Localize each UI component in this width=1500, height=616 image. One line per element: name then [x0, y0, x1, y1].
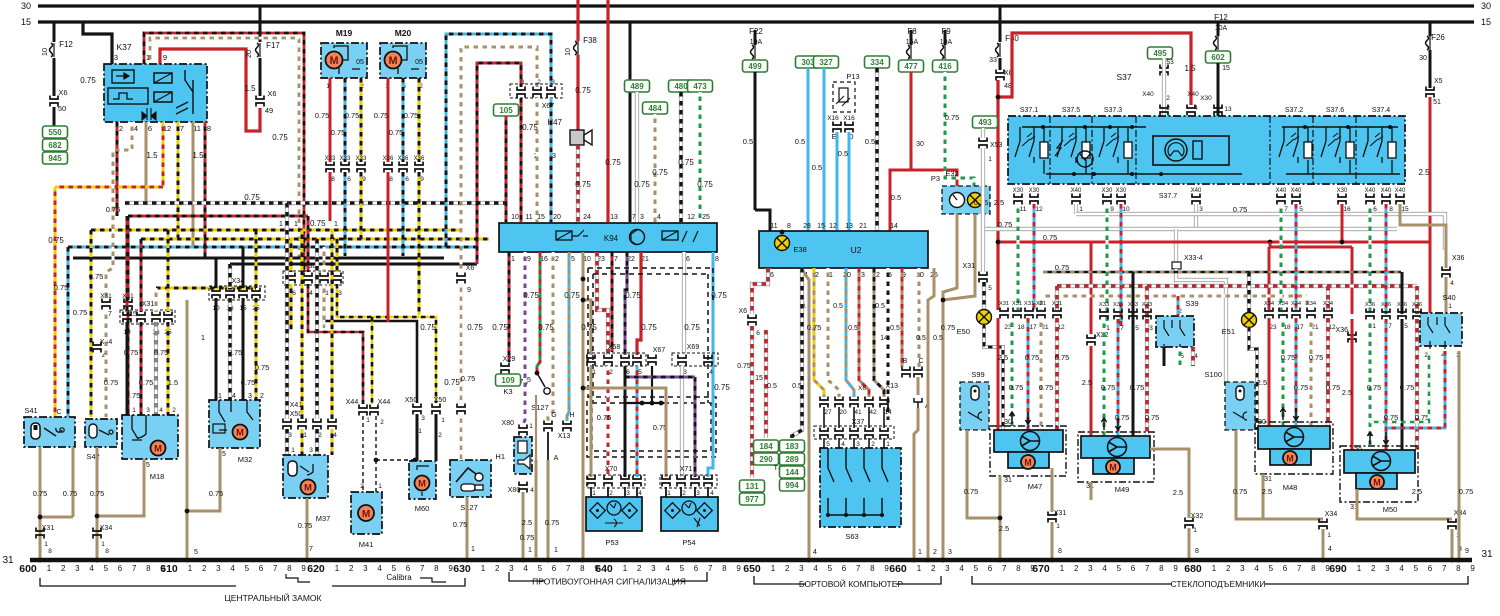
svg-text:2: 2	[61, 564, 66, 573]
svg-text:2: 2	[202, 564, 207, 573]
svg-text:0.75: 0.75	[1281, 353, 1296, 362]
svg-text:3: 3	[114, 53, 118, 62]
svg-text:8: 8	[331, 176, 335, 183]
svg-text:X31: X31	[1024, 301, 1034, 307]
svg-text:30: 30	[21, 1, 31, 11]
svg-text:M19: M19	[336, 28, 353, 38]
svg-text:P54: P54	[682, 538, 695, 547]
svg-text:8: 8	[434, 564, 439, 573]
svg-text:550: 550	[48, 128, 62, 137]
svg-text:05: 05	[415, 59, 423, 66]
svg-text:2.5: 2.5	[994, 198, 1004, 207]
svg-text:1: 1	[1327, 532, 1331, 539]
svg-text:X34: X34	[1291, 301, 1302, 307]
svg-text:K94: K94	[604, 234, 619, 243]
svg-text:F17: F17	[266, 41, 280, 50]
svg-text:0.75: 0.75	[625, 291, 641, 300]
svg-text:X5: X5	[1434, 78, 1443, 85]
svg-text:12: 12	[1035, 206, 1043, 213]
svg-text:1.5: 1.5	[244, 84, 256, 93]
svg-text:20: 20	[839, 409, 847, 416]
svg-text:9: 9	[736, 564, 741, 573]
svg-text:C: C	[918, 358, 923, 365]
svg-text:1: 1	[592, 490, 596, 497]
svg-text:X40: X40	[1365, 188, 1376, 194]
svg-text:X36: X36	[383, 156, 394, 162]
svg-text:2.5: 2.5	[1342, 388, 1352, 397]
svg-text:2: 2	[933, 549, 937, 556]
svg-text:0.75: 0.75	[597, 413, 612, 422]
svg-text:31: 31	[1481, 549, 1493, 560]
svg-text:3: 3	[552, 153, 556, 160]
svg-text:0.75: 0.75	[634, 180, 650, 189]
svg-text:5: 5	[826, 441, 830, 448]
svg-text:0.75: 0.75	[298, 521, 313, 530]
svg-text:2: 2	[495, 564, 500, 573]
svg-text:3: 3	[551, 79, 555, 86]
svg-text:0.75: 0.75	[697, 180, 713, 189]
svg-text:X44: X44	[378, 399, 391, 406]
svg-text:3: 3	[945, 564, 950, 573]
svg-text:0.75: 0.75	[1294, 383, 1309, 392]
svg-text:15: 15	[755, 375, 763, 382]
svg-text:S37.7: S37.7	[1159, 193, 1177, 200]
svg-text:5: 5	[146, 462, 150, 469]
svg-text:M37: M37	[316, 514, 331, 523]
svg-text:2.5: 2.5	[998, 353, 1008, 362]
svg-text:X31: X31	[1036, 301, 1046, 307]
svg-text:23: 23	[1269, 324, 1277, 331]
svg-text:4: 4	[1328, 546, 1332, 553]
svg-text:6: 6	[694, 564, 699, 573]
svg-text:0.75: 0.75	[605, 158, 621, 167]
svg-text:X40: X40	[1291, 188, 1302, 194]
svg-text:0.5: 0.5	[865, 137, 875, 146]
svg-text:6: 6	[292, 290, 296, 297]
svg-text:S127: S127	[531, 403, 549, 412]
svg-text:2: 2	[1074, 564, 1079, 573]
svg-text:0.5: 0.5	[890, 325, 900, 332]
svg-text:X44: X44	[346, 399, 359, 406]
svg-text:4: 4	[230, 564, 235, 573]
svg-text:X30: X30	[1116, 188, 1127, 194]
svg-text:7: 7	[132, 564, 137, 573]
svg-text:G: G	[551, 412, 556, 419]
svg-text:620: 620	[307, 563, 325, 575]
svg-text:X13: X13	[558, 433, 571, 440]
svg-text:0.75: 0.75	[33, 489, 48, 498]
svg-text:0.75: 0.75	[575, 86, 591, 95]
svg-text:X40: X40	[1381, 188, 1392, 194]
svg-text:0.75: 0.75	[453, 520, 468, 529]
svg-text:0.75: 0.75	[1039, 383, 1054, 392]
svg-text:S40: S40	[1442, 293, 1455, 302]
svg-text:0.75: 0.75	[1384, 413, 1399, 422]
svg-text:602: 602	[1211, 53, 1225, 62]
svg-text:X70: X70	[605, 466, 618, 473]
svg-text:15: 15	[537, 214, 545, 221]
svg-text:0.75: 0.75	[467, 323, 483, 332]
svg-text:493: 493	[978, 118, 992, 127]
svg-text:6: 6	[842, 564, 847, 573]
svg-text:1: 1	[481, 564, 486, 573]
svg-text:8: 8	[715, 256, 719, 263]
svg-text:0.75: 0.75	[315, 111, 330, 120]
svg-text:0.75: 0.75	[444, 378, 460, 387]
svg-text:1: 1	[325, 290, 329, 297]
svg-text:X29: X29	[503, 356, 516, 363]
svg-text:05: 05	[356, 59, 364, 66]
svg-text:49: 49	[265, 106, 273, 115]
svg-text:6: 6	[406, 564, 411, 573]
svg-text:5: 5	[527, 377, 531, 384]
svg-text:28: 28	[803, 223, 811, 230]
svg-text:0.75: 0.75	[1367, 383, 1382, 392]
svg-text:14: 14	[890, 223, 898, 230]
svg-text:0.75: 0.75	[89, 272, 104, 281]
svg-text:E50: E50	[957, 327, 970, 336]
svg-text:13: 13	[610, 214, 618, 221]
svg-text:2: 2	[682, 490, 686, 497]
svg-text:X36: X36	[1412, 302, 1422, 308]
svg-text:0.75: 0.75	[54, 283, 69, 292]
svg-text:3: 3	[216, 564, 221, 573]
svg-text:12: 12	[687, 214, 695, 221]
svg-text:9: 9	[1173, 564, 1178, 573]
svg-text:650: 650	[743, 563, 761, 575]
svg-text:7: 7	[180, 124, 184, 133]
svg-text:M: M	[362, 509, 370, 520]
svg-text:7: 7	[309, 546, 313, 553]
svg-text:7: 7	[108, 311, 112, 318]
svg-text:X53: X53	[990, 142, 1003, 149]
svg-text:0.75: 0.75	[538, 323, 554, 332]
svg-text:1: 1	[291, 447, 295, 454]
svg-text:495: 495	[1153, 49, 1167, 58]
svg-text:18: 18	[1283, 324, 1291, 331]
svg-text:3: 3	[626, 490, 630, 497]
svg-text:X30: X30	[304, 263, 317, 270]
svg-text:0.75: 0.75	[714, 383, 730, 392]
svg-text:20: 20	[553, 214, 561, 221]
svg-text:S37.3: S37.3	[1104, 107, 1122, 114]
svg-text:0.75: 0.75	[1043, 233, 1058, 242]
svg-text:X33: X33	[1128, 302, 1138, 308]
svg-text:5: 5	[974, 564, 979, 573]
svg-text:X36: X36	[1336, 327, 1349, 334]
svg-text:M: M	[154, 444, 162, 454]
svg-text:P3: P3	[931, 174, 940, 183]
svg-text:1: 1	[334, 221, 338, 228]
svg-text:5: 5	[194, 549, 198, 556]
svg-text:0.5: 0.5	[833, 303, 843, 310]
svg-text:7: 7	[1388, 323, 1392, 330]
svg-text:X34: X34	[1278, 301, 1289, 307]
svg-text:S41: S41	[24, 406, 37, 415]
svg-text:S37.6: S37.6	[1326, 107, 1344, 114]
svg-text:0.75: 0.75	[1115, 413, 1130, 422]
svg-text:0.75: 0.75	[241, 378, 256, 387]
svg-text:0.5: 0.5	[933, 335, 943, 342]
svg-text:8: 8	[1058, 548, 1062, 555]
svg-text:0.75: 0.75	[1055, 353, 1070, 362]
svg-text:0.75: 0.75	[1400, 383, 1415, 392]
svg-text:477: 477	[904, 62, 918, 71]
svg-text:0.75: 0.75	[90, 489, 105, 498]
svg-text:4: 4	[1194, 105, 1198, 112]
svg-text:X34: X34	[1306, 301, 1317, 307]
svg-text:4: 4	[309, 290, 313, 297]
svg-text:33: 33	[989, 57, 997, 64]
svg-text:X36: X36	[1452, 255, 1465, 262]
svg-text:15: 15	[817, 223, 825, 230]
svg-text:M60: M60	[415, 504, 430, 513]
svg-text:4: 4	[1254, 564, 1259, 573]
svg-text:1: 1	[667, 490, 671, 497]
svg-text:9: 9	[1470, 564, 1475, 573]
svg-text:1.5: 1.5	[168, 378, 178, 387]
svg-text:11: 11	[1020, 206, 1027, 213]
svg-text:183: 183	[785, 442, 799, 451]
svg-text:X34: X34	[1325, 511, 1338, 518]
svg-text:X34: X34	[1323, 301, 1334, 307]
svg-text:10: 10	[565, 48, 572, 56]
svg-text:15: 15	[1481, 17, 1491, 27]
svg-text:6: 6	[552, 564, 557, 573]
svg-text:3: 3	[363, 564, 368, 573]
svg-text:5: 5	[1404, 323, 1408, 330]
svg-text:6: 6	[118, 564, 123, 573]
svg-text:21: 21	[1041, 324, 1049, 331]
svg-text:7: 7	[566, 564, 571, 573]
svg-text:7: 7	[420, 564, 425, 573]
svg-text:0.75: 0.75	[389, 128, 404, 137]
svg-text:1: 1	[441, 417, 445, 424]
svg-text:0.75: 0.75	[1025, 353, 1040, 362]
svg-text:1: 1	[294, 221, 298, 228]
svg-text:9: 9	[420, 176, 424, 183]
svg-text:2: 2	[1166, 105, 1170, 112]
svg-text:3: 3	[1149, 325, 1153, 332]
svg-text:X40: X40	[1276, 188, 1287, 194]
svg-text:0.75: 0.75	[139, 378, 154, 387]
svg-text:0.75: 0.75	[374, 111, 389, 120]
svg-text:X34: X34	[1264, 301, 1275, 307]
svg-text:X50: X50	[405, 397, 418, 404]
svg-text:6: 6	[405, 176, 409, 183]
svg-text:0.75: 0.75	[564, 291, 580, 300]
svg-text:2: 2	[1166, 95, 1170, 102]
svg-text:3: 3	[248, 393, 252, 400]
svg-text:0.75: 0.75	[964, 487, 979, 496]
svg-text:1: 1	[554, 547, 558, 554]
svg-text:31: 31	[1264, 476, 1272, 483]
svg-text:5: 5	[104, 564, 109, 573]
svg-text:4: 4	[1102, 564, 1107, 573]
svg-text:13: 13	[845, 223, 853, 230]
svg-text:1: 1	[623, 564, 628, 573]
svg-text:X40: X40	[1395, 188, 1406, 194]
svg-text:0.75: 0.75	[209, 489, 224, 498]
svg-text:X30: X30	[1102, 188, 1113, 194]
svg-text:БОРТОВОЙ КОМПЬЮТЕР: БОРТОВОЙ КОМПЬЮТЕР	[799, 578, 903, 589]
svg-text:660: 660	[889, 563, 907, 575]
svg-text:E38: E38	[793, 245, 806, 254]
svg-text:0.75: 0.75	[272, 133, 288, 142]
svg-text:X30: X30	[1029, 188, 1040, 194]
svg-text:0.75: 0.75	[1009, 383, 1024, 392]
svg-text:1: 1	[201, 333, 205, 342]
svg-text:1: 1	[146, 53, 150, 62]
svg-text:0.75: 0.75	[941, 323, 956, 332]
svg-text:M47: M47	[1028, 482, 1043, 491]
svg-text:6: 6	[686, 256, 690, 263]
svg-text:0.75: 0.75	[1459, 487, 1474, 496]
svg-text:6: 6	[770, 272, 774, 279]
svg-text:1: 1	[132, 407, 136, 414]
svg-text:484: 484	[648, 104, 662, 113]
svg-text:977: 977	[745, 495, 759, 504]
svg-text:0.75: 0.75	[998, 220, 1013, 229]
svg-text:M32: M32	[238, 455, 253, 464]
svg-text:31: 31	[2, 555, 14, 566]
svg-text:0.75: 0.75	[520, 533, 535, 542]
svg-text:M: M	[304, 483, 312, 493]
svg-text:600: 600	[19, 563, 37, 575]
svg-text:1.5: 1.5	[146, 151, 158, 160]
svg-text:S37: S37	[1116, 72, 1131, 82]
svg-text:15: 15	[1222, 65, 1230, 72]
svg-text:5: 5	[1117, 564, 1122, 573]
svg-text:0.75: 0.75	[684, 323, 700, 332]
svg-text:131: 131	[745, 482, 759, 491]
svg-text:1: 1	[1212, 564, 1217, 573]
svg-text:2: 2	[172, 407, 176, 414]
svg-text:6: 6	[626, 369, 630, 376]
svg-text:X32: X32	[1191, 513, 1204, 520]
svg-text:2: 2	[360, 483, 364, 490]
svg-text:0.75: 0.75	[310, 219, 326, 228]
svg-text:1: 1	[44, 541, 48, 548]
svg-text:F26: F26	[1431, 33, 1445, 42]
svg-text:X30: X30	[1013, 188, 1024, 194]
svg-text:M: M	[1024, 457, 1031, 467]
svg-text:8: 8	[1159, 564, 1164, 573]
svg-text:0.75: 0.75	[124, 348, 139, 357]
svg-text:X36: X36	[1381, 302, 1391, 308]
svg-text:X31: X31	[42, 525, 55, 532]
svg-text:640: 640	[595, 563, 613, 575]
svg-text:K3: K3	[503, 387, 512, 396]
svg-text:2: 2	[349, 564, 354, 573]
svg-text:27: 27	[824, 409, 832, 416]
svg-text:0.5: 0.5	[767, 383, 777, 390]
svg-text:X31: X31	[1054, 510, 1067, 517]
svg-text:1: 1	[1357, 564, 1362, 573]
svg-text:3: 3	[146, 407, 150, 414]
svg-text:F12: F12	[1214, 13, 1228, 22]
svg-text:2: 2	[537, 79, 541, 86]
svg-text:0.75: 0.75	[1130, 383, 1145, 392]
svg-text:0.75: 0.75	[581, 323, 597, 332]
svg-text:X67: X67	[653, 347, 666, 354]
svg-text:3: 3	[856, 441, 860, 448]
svg-text:H: H	[569, 412, 574, 419]
svg-text:3: 3	[75, 564, 80, 573]
svg-text:480: 480	[674, 82, 688, 91]
svg-text:0.5: 0.5	[891, 193, 901, 202]
svg-text:0.75: 0.75	[331, 128, 346, 137]
svg-text:X33: X33	[1113, 302, 1123, 308]
svg-text:M: M	[1109, 462, 1116, 472]
svg-text:0.75: 0.75	[1101, 383, 1116, 392]
svg-text:42: 42	[869, 409, 877, 416]
svg-text:30: 30	[1419, 55, 1427, 62]
svg-text:945: 945	[48, 154, 62, 163]
svg-text:1: 1	[378, 483, 382, 490]
svg-text:6: 6	[756, 330, 760, 337]
svg-text:3: 3	[640, 214, 644, 221]
svg-text:S127: S127	[460, 503, 478, 512]
svg-text:0.5: 0.5	[875, 303, 885, 310]
svg-text:0.75: 0.75	[522, 123, 538, 132]
svg-text:7: 7	[1002, 564, 1007, 573]
svg-text:3: 3	[421, 415, 425, 422]
svg-text:F38: F38	[583, 36, 597, 45]
svg-text:50: 50	[58, 104, 66, 113]
svg-text:7: 7	[708, 564, 713, 573]
svg-text:5: 5	[1135, 325, 1139, 332]
svg-text:5: 5	[222, 451, 226, 458]
svg-text:X36: X36	[414, 156, 425, 162]
svg-text:3: 3	[1385, 564, 1390, 573]
svg-text:2: 2	[260, 393, 264, 400]
svg-text:M: M	[418, 479, 426, 489]
svg-text:1.5: 1.5	[1184, 64, 1196, 73]
svg-text:2.5: 2.5	[1082, 378, 1092, 387]
svg-text:1: 1	[335, 564, 340, 573]
svg-text:1.5: 1.5	[192, 151, 204, 160]
svg-text:0.75: 0.75	[652, 168, 668, 177]
svg-text:2: 2	[1424, 352, 1428, 359]
svg-text:5: 5	[988, 285, 992, 292]
svg-text:4: 4	[89, 564, 94, 573]
svg-text:24: 24	[583, 214, 591, 221]
svg-text:4: 4	[813, 564, 818, 573]
svg-text:0.75: 0.75	[404, 111, 419, 120]
svg-text:1: 1	[771, 564, 776, 573]
svg-text:0.75: 0.75	[104, 378, 119, 387]
svg-text:0.75: 0.75	[106, 205, 121, 214]
svg-text:S39: S39	[1185, 299, 1198, 308]
svg-text:31: 31	[1004, 477, 1012, 484]
svg-text:5: 5	[638, 369, 642, 376]
svg-text:105: 105	[499, 106, 513, 115]
svg-text:2: 2	[871, 441, 875, 448]
svg-text:X71: X71	[680, 466, 693, 473]
svg-text:1: 1	[829, 272, 833, 279]
svg-text:U2: U2	[851, 245, 862, 255]
svg-text:0.75: 0.75	[63, 489, 78, 498]
svg-text:5: 5	[1269, 564, 1274, 573]
svg-text:630: 630	[453, 563, 471, 575]
svg-text:15: 15	[21, 17, 31, 27]
svg-text:X31: X31	[999, 301, 1009, 307]
svg-text:14: 14	[884, 409, 892, 416]
svg-text:0.75: 0.75	[228, 348, 243, 357]
svg-text:0.75: 0.75	[154, 348, 169, 357]
svg-text:12: 12	[829, 223, 837, 230]
